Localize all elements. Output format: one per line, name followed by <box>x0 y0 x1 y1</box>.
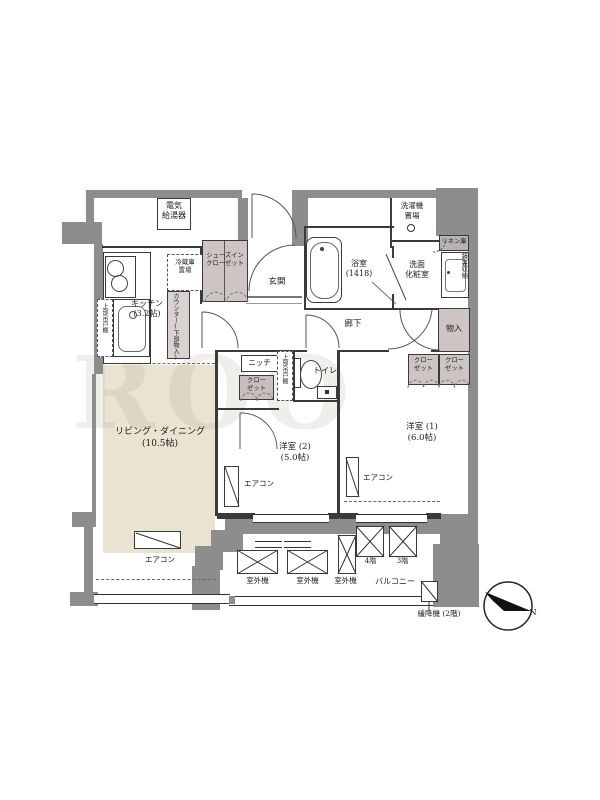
bedroom2-label: 洋室 (2) (5.0帖) <box>267 442 323 464</box>
wall-segment <box>62 222 102 244</box>
aircon-unit <box>134 531 181 549</box>
fridge-label: 冷蔵庫 置場 <box>167 258 203 275</box>
hatch-box-3f <box>389 526 417 557</box>
burner-icon <box>111 275 128 292</box>
powder-room-label: 洗面 化粧室 <box>398 260 436 281</box>
wall-segment <box>448 534 478 546</box>
wall-line <box>338 350 389 352</box>
threshold <box>255 541 282 548</box>
closet-line2: ゼット <box>445 365 464 372</box>
kitchen-line2: (3.2帖) <box>134 309 161 318</box>
washer-label: 洗濯機 置場 <box>390 201 434 221</box>
storage-label: 物入 <box>438 324 470 334</box>
wall-segment <box>84 512 93 600</box>
toilet-label: トイレ <box>309 366 341 376</box>
floor4-label: 4階 <box>358 557 383 566</box>
kitchen-line1: キッチン <box>131 299 163 308</box>
shoes-closet-line1: シューズイン <box>206 252 243 259</box>
living-line2: (10.5帖) <box>142 439 178 449</box>
hatch-box-4f <box>356 526 384 557</box>
shoes-closet-box <box>202 240 248 302</box>
wall-segment <box>436 188 478 236</box>
corridor-label: 廊下 <box>339 319 367 330</box>
wall-line <box>426 513 441 519</box>
closet-line1: クロー <box>445 357 464 364</box>
bedroom1-label: 洋室 (1) (6.0帖) <box>392 422 452 444</box>
mirror-storage-label: 鏡裏収納 <box>460 253 466 278</box>
outdoor-unit-label: 室外機 <box>287 576 328 586</box>
drain-icon <box>320 247 324 251</box>
rail-end <box>229 596 235 604</box>
small-closet-label: クロー ゼット <box>239 377 274 393</box>
wall-segment <box>308 190 438 198</box>
bathtub-inner <box>310 242 339 299</box>
entrance-step-line <box>246 296 302 298</box>
bath-line2: (1418) <box>346 269 373 278</box>
outdoor-unit-box <box>287 550 328 574</box>
living-dining-label: リビング・ダイニング (10.5帖) <box>102 427 218 450</box>
closet-line2: ゼット <box>414 365 433 372</box>
niche-label: ニッチ <box>241 358 278 368</box>
window <box>253 514 329 523</box>
wall-line <box>217 513 255 519</box>
aircon-label: エアコン <box>240 479 278 489</box>
wall-segment <box>433 544 479 607</box>
outdoor-unit-label: 室外機 <box>325 576 366 586</box>
beam-dashed-line <box>344 501 440 502</box>
small-closet-line1: クロー <box>247 377 266 384</box>
vanity-tap-icon <box>447 271 450 274</box>
bath-label: 浴室 (1418) <box>340 259 378 280</box>
window <box>94 594 230 604</box>
wall-line <box>293 400 340 402</box>
wall-line <box>304 226 394 228</box>
balcony-label: バルコニー <box>368 577 422 587</box>
counter-label: カウンター(下部物入) <box>172 293 178 361</box>
washer-line2: 置場 <box>405 211 420 220</box>
small-closet-line2: ゼット <box>247 385 266 392</box>
wall-line <box>392 246 394 258</box>
wall-line <box>217 408 279 410</box>
water-heater-line2: 給湯器 <box>162 211 186 220</box>
upper-cabinet-label: 上部吊戸棚 <box>101 303 107 333</box>
escape-device-box <box>421 581 438 602</box>
bedroom2-line2: (5.0帖) <box>281 453 310 463</box>
bath-line1: 浴室 <box>351 259 367 268</box>
upper-cabinet-label: 上部吊戸棚 <box>281 354 287 384</box>
water-heater-line1: 電気 <box>166 201 182 210</box>
outdoor-unit-box <box>237 550 278 574</box>
fridge-line1: 冷蔵庫 <box>175 258 195 266</box>
shoes-closet-line2: クローゼット <box>206 260 244 267</box>
window <box>356 514 427 523</box>
closet-line1: クロー <box>414 357 433 364</box>
aircon-unit <box>346 457 359 497</box>
bedroom1-line1: 洋室 (1) <box>406 422 438 432</box>
fridge-line2: 置場 <box>179 266 192 274</box>
compass-n-label: N <box>526 608 540 619</box>
powder-room-line1: 洗面 <box>409 260 425 269</box>
balcony-rail <box>229 596 433 606</box>
bedroom1-line2: (6.0帖) <box>408 433 437 443</box>
bedroom2-line1: 洋室 (2) <box>279 442 311 452</box>
entrance-label: 玄関 <box>260 277 294 288</box>
water-heater-label: 電気 給湯器 <box>157 201 191 222</box>
floor3-label: 3階 <box>390 557 415 566</box>
living-line1: リビング・ダイニング <box>115 427 205 437</box>
beam-dashed-line <box>96 579 216 580</box>
kitchen-label: キッチン (3.2帖) <box>124 299 170 320</box>
toilet-cabinet-dot <box>325 390 329 394</box>
washer-tap-icon <box>407 224 415 232</box>
wall-segment <box>86 190 242 198</box>
shoes-closet-label: シューズイン クローゼット <box>200 252 250 268</box>
outdoor-unit-label: 室外機 <box>237 576 278 586</box>
aircon-label: エアコン <box>359 473 397 483</box>
aircon-unit <box>224 466 239 507</box>
wall-segment <box>86 190 94 226</box>
closet-label: クロー ゼット <box>408 357 439 373</box>
closet-label: クロー ゼット <box>439 357 470 373</box>
escape-device-label: 緩降機 (2階) <box>399 609 479 619</box>
linen-label: リネン庫 <box>439 238 469 246</box>
entrance-step-line <box>246 303 302 304</box>
washer-line1: 洗濯機 <box>401 201 424 210</box>
wall-segment <box>92 374 96 514</box>
wall-line <box>328 513 339 519</box>
powder-room-line2: 化粧室 <box>405 270 429 279</box>
closet-divider <box>224 241 225 301</box>
aircon-label: エアコン <box>140 555 180 565</box>
threshold <box>284 541 311 548</box>
outdoor-unit-box <box>338 535 356 574</box>
wall-line <box>392 240 440 242</box>
compass-icon <box>484 582 532 630</box>
floor-plan: ROO 電気 <box>0 0 600 800</box>
